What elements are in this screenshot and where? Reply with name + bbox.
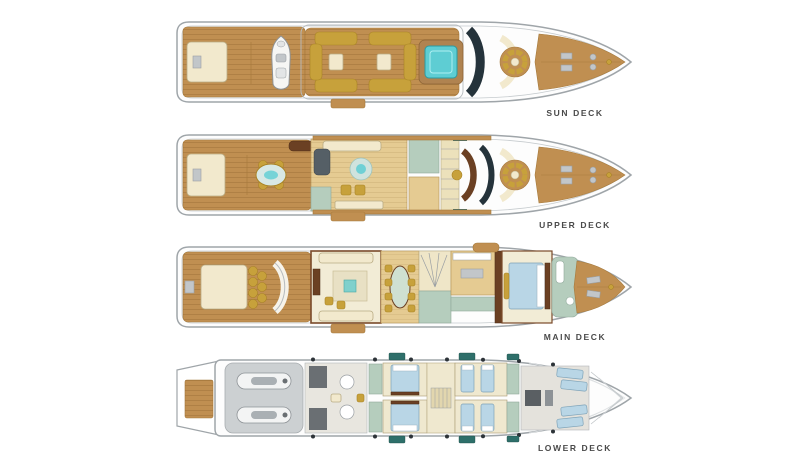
jet-ski xyxy=(237,407,291,423)
guest-cabin-double xyxy=(383,363,427,396)
foredeck xyxy=(535,147,625,203)
crew-mess xyxy=(305,363,367,433)
alfresco-dining xyxy=(256,161,286,190)
boarding-platform xyxy=(331,324,365,333)
aft-sunpad xyxy=(201,265,247,309)
boarding-platform xyxy=(331,99,365,108)
salon xyxy=(311,251,381,323)
guest-cabin-double xyxy=(383,400,427,433)
jacuzzi xyxy=(419,40,463,84)
upper-deck-label: UPPER DECK xyxy=(505,220,645,230)
master-cabin xyxy=(502,251,552,323)
sun-deck-label: SUN DECK xyxy=(505,108,645,118)
tender-garage xyxy=(225,363,303,433)
guest-bath xyxy=(369,402,382,432)
dining-room xyxy=(381,251,419,323)
guest-cabin-twin xyxy=(455,363,507,396)
wardrobe xyxy=(495,251,502,323)
foyer-stairs xyxy=(419,251,451,323)
lower-deck-plan xyxy=(163,350,643,446)
crew-quarters xyxy=(521,366,589,430)
dinghy-stowage xyxy=(473,243,499,252)
crew-bath xyxy=(507,364,519,394)
captain-cabin xyxy=(409,177,439,211)
pantry xyxy=(409,139,439,173)
aft-sunpad xyxy=(187,154,225,196)
crew-bath xyxy=(507,402,519,432)
galley xyxy=(451,251,495,311)
lobby-stairs xyxy=(427,363,455,433)
foredeck xyxy=(535,34,625,90)
upper-deck-plan xyxy=(163,127,643,223)
guest-bath xyxy=(369,364,382,394)
jet-ski xyxy=(237,373,291,389)
sky-lounge xyxy=(311,139,407,211)
boarding-platform xyxy=(331,212,365,221)
guest-cabin-twin xyxy=(455,400,507,433)
lower-deck-label: LOWER DECK xyxy=(505,443,645,453)
yacht-deck-plans: SUN DECK xyxy=(0,0,800,469)
foredeck xyxy=(574,261,625,313)
tender-boat xyxy=(272,36,290,89)
sun-deck-plan xyxy=(163,14,643,110)
main-deck-label: MAIN DECK xyxy=(505,332,645,342)
main-deck-plan xyxy=(163,239,643,335)
